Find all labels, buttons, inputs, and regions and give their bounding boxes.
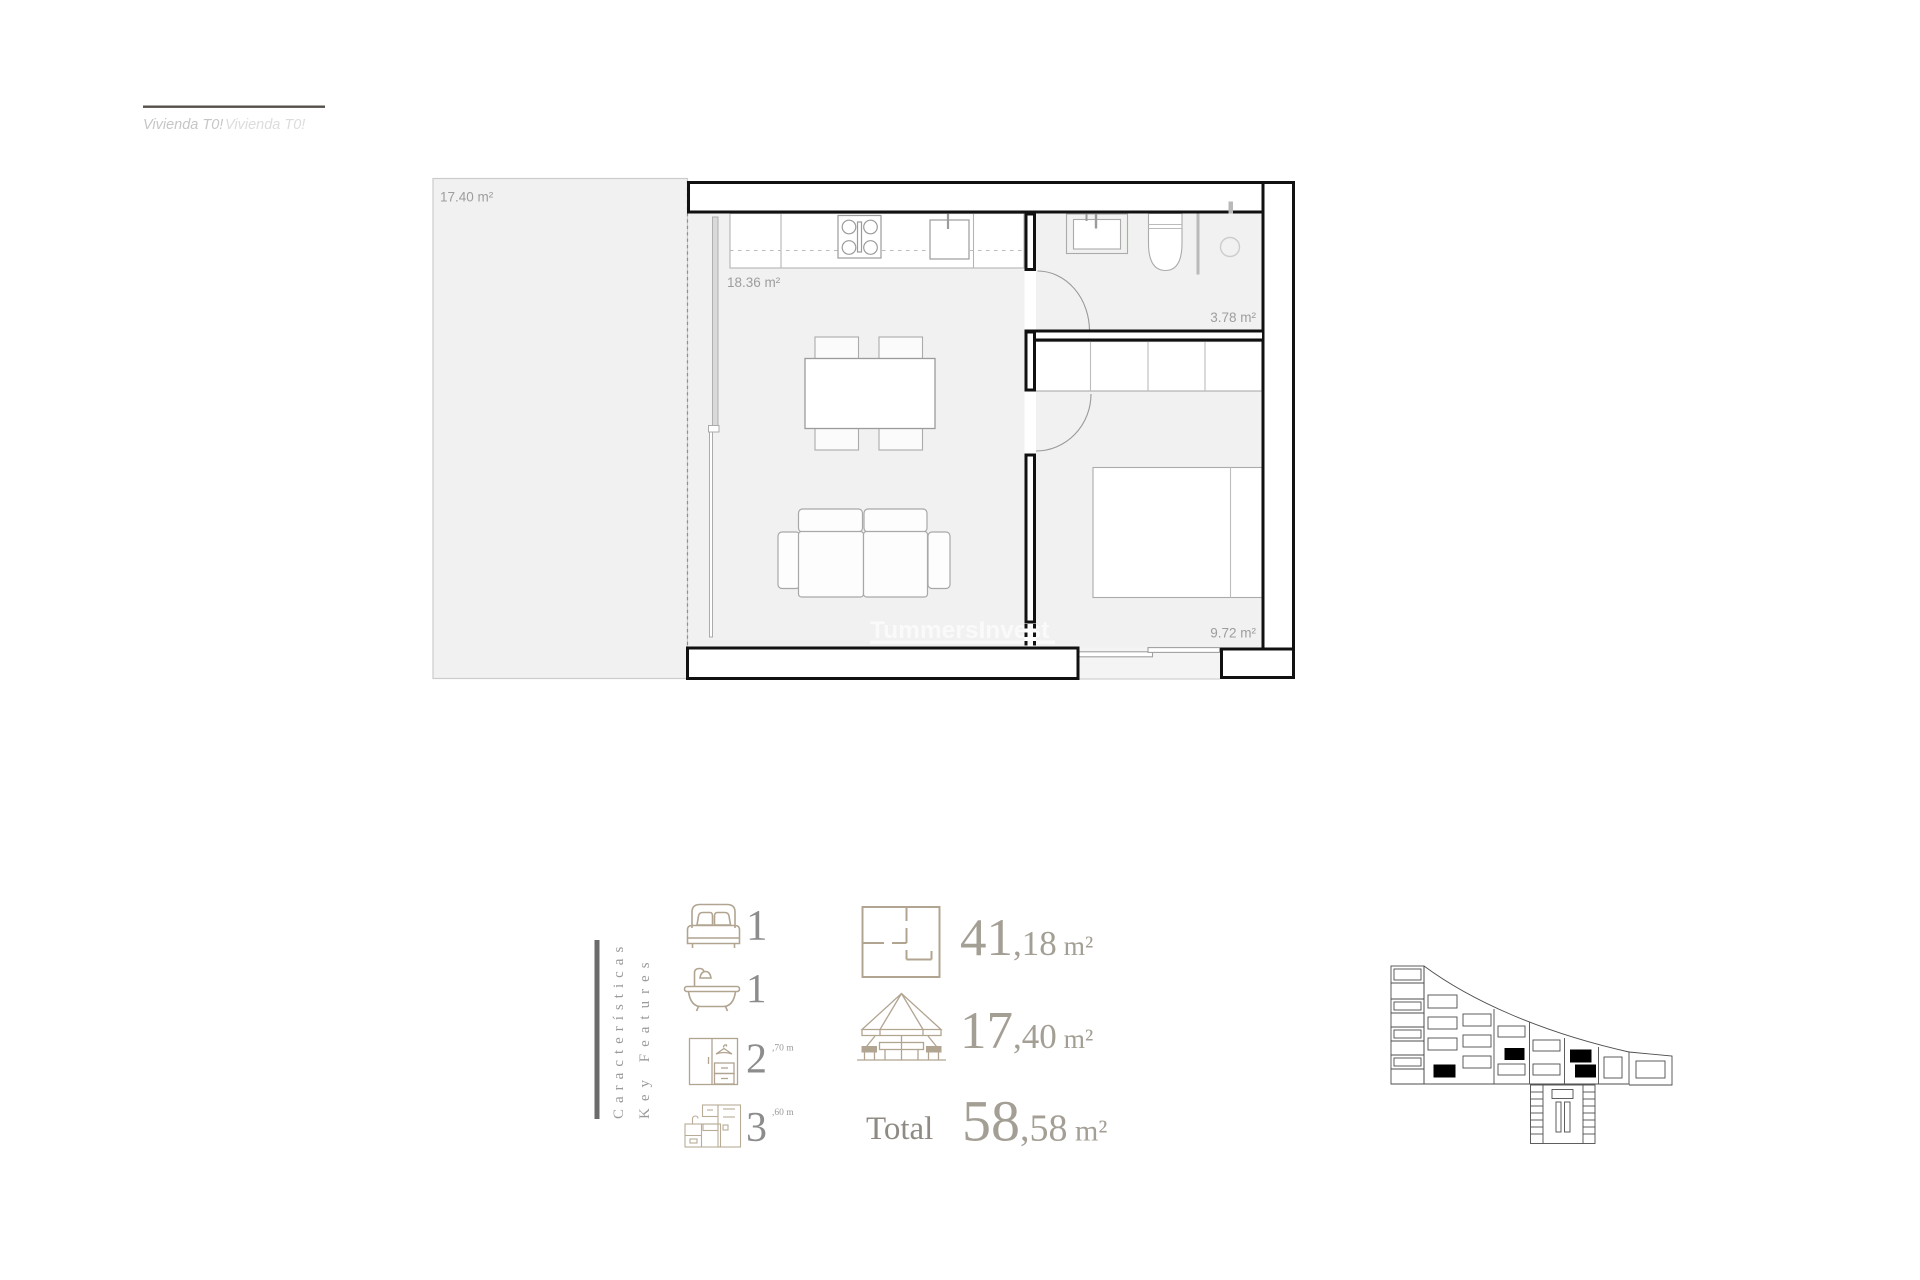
svg-text:1: 1 <box>746 965 767 1011</box>
svg-text:3: 3 <box>746 1105 767 1151</box>
svg-text:,70 m: ,70 m <box>772 1044 794 1054</box>
svg-text:TummersInvest: TummersInvest <box>870 617 1049 644</box>
svg-text:2: 2 <box>746 1037 767 1083</box>
svg-text:58,58 m²: 58,58 m² <box>962 1089 1107 1154</box>
svg-text:17.40 m²: 17.40 m² <box>440 190 494 205</box>
svg-text:3.78 m²: 3.78 m² <box>1210 310 1256 325</box>
svg-text:41,18 m²: 41,18 m² <box>960 909 1093 967</box>
svg-text:17,40 m²: 17,40 m² <box>960 1002 1093 1060</box>
svg-text:Vivienda T0!: Vivienda T0! <box>143 117 223 133</box>
svg-text:Vivienda T0!: Vivienda T0! <box>225 117 305 133</box>
svg-text:Key Features: Key Features <box>637 955 653 1119</box>
svg-text:9.72 m²: 9.72 m² <box>1210 626 1256 641</box>
svg-text:1: 1 <box>746 903 768 950</box>
svg-text:,60 m: ,60 m <box>772 1108 794 1118</box>
svg-text:Características: Características <box>611 941 627 1119</box>
svg-text:18.36 m²: 18.36 m² <box>727 275 781 290</box>
svg-text:Total: Total <box>866 1111 933 1147</box>
